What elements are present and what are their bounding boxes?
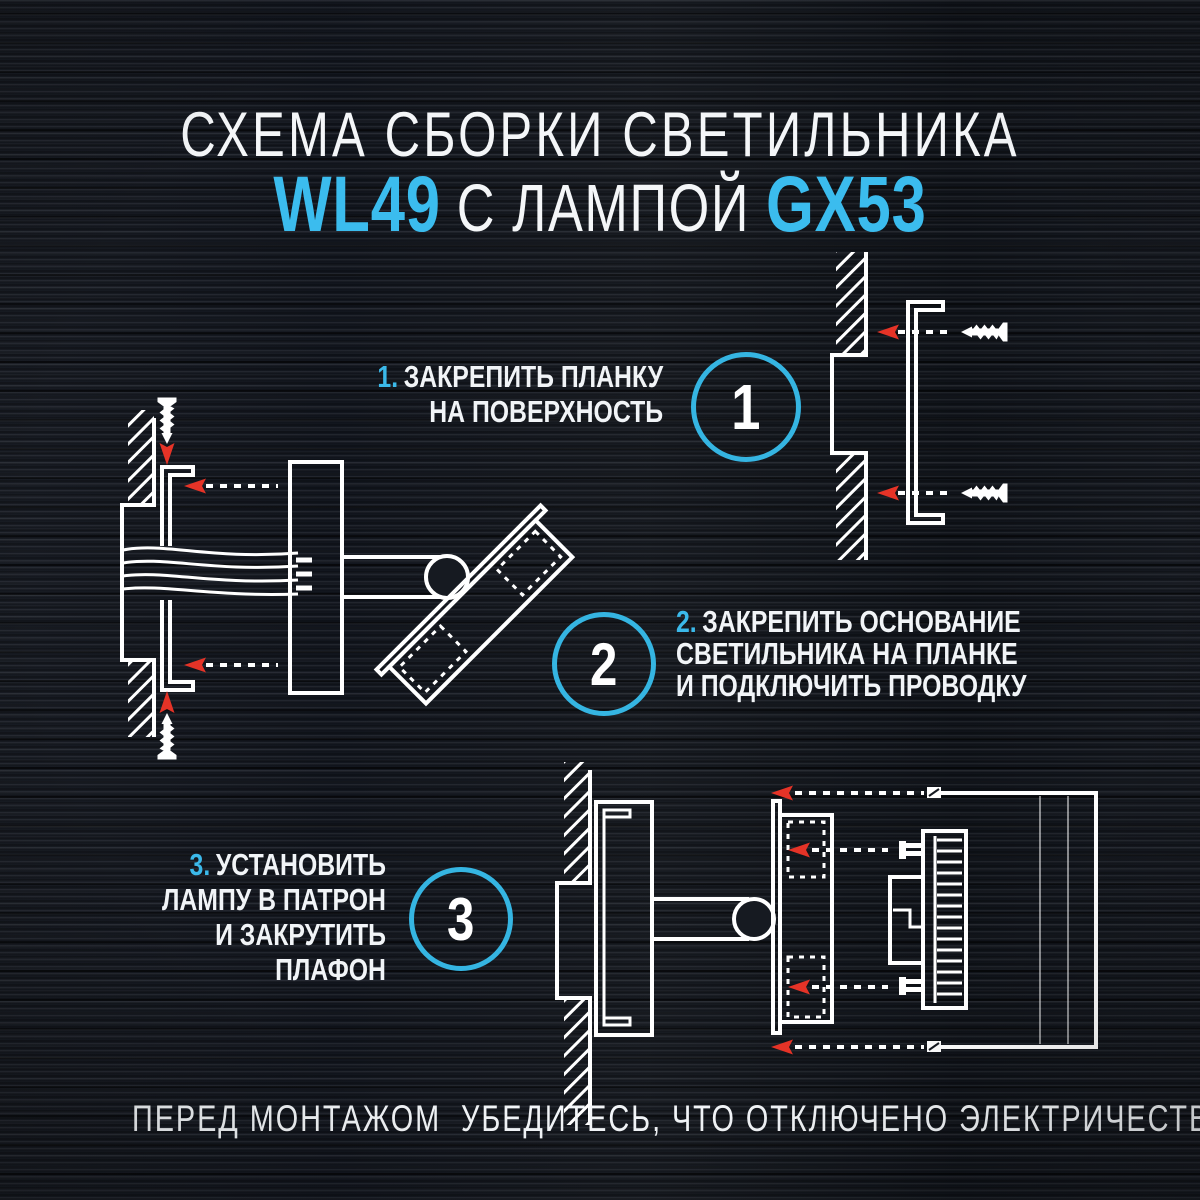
red-arrow-icon [184,479,206,494]
gx53-lamp-icon [890,831,966,1008]
pivot-joint [734,899,774,939]
step1-line1: 1.ЗАКРЕПИТЬ ПЛАНКУ [377,359,663,394]
red-arrow-icon [771,1040,793,1055]
step3-badge: 3 [409,867,513,971]
safety-warning: ПЕРЕД МОНТАЖОМ УБЕДИТЕСЬ, ЧТО ОТКЛЮЧЕНО … [132,1098,1068,1140]
step1-diagram [832,252,1008,560]
page-subtitle: WL49 С ЛАМПОЙ GX53 [132,162,1068,269]
red-arrow-icon [877,486,899,501]
step1-label: 1.ЗАКРЕПИТЬ ПЛАНКУ НА ПОВЕРХНОСТЬ [377,359,663,429]
step1-badge: 1 [691,352,801,462]
step3-number: 3. [190,847,211,882]
screw-icon [158,713,177,760]
mounting-plate-icon [162,467,193,546]
red-arrow-icon [771,786,793,801]
plafond [927,787,1096,1052]
screw-icon [961,484,1008,503]
step2-badge: 2 [552,612,656,716]
red-arrow-icon [788,980,810,995]
subtitle-middle: С ЛАМПОЙ [457,171,750,246]
step3-line1: 3.УСТАНОВИТЬ [162,847,386,882]
lamp-code: GX53 [766,159,927,248]
step3-line3: И ЗАКРУТИТЬ [162,917,386,952]
step3-line2: ЛАМПУ В ПАТРОН [162,882,386,917]
wall-hatch [836,453,866,560]
wall-hatch [564,762,590,883]
red-arrow-icon [160,691,175,713]
wires [123,548,312,595]
red-arrow-icon [160,443,175,465]
plafond-tab [927,1041,941,1052]
red-arrow-icon [184,658,206,673]
step2-label: 2.ЗАКРЕПИТЬ ОСНОВАНИЕ СВЕТИЛЬНИКА НА ПЛА… [676,606,1027,702]
step1-number: 1. [377,359,398,394]
screw-icon [158,398,177,445]
step1-line2: НА ПОВЕРХНОСТЬ [377,394,663,429]
step2-number: 2. [676,604,697,639]
step2-line3: И ПОДКЛЮЧИТЬ ПРОВОДКУ [676,670,1027,702]
lamp-socket [773,801,832,1033]
step3-label: 3.УСТАНОВИТЬ ЛАМПУ В ПАТРОН И ЗАКРУТИТЬ … [162,847,386,987]
lamp-socket-tilted [377,506,583,712]
step3-line4: ПЛАФОН [162,952,386,987]
fixture-base [290,462,342,693]
model-code: WL49 [273,159,440,248]
red-arrow-icon [877,325,899,340]
plafond-tab [927,787,941,798]
screw-icon [961,323,1008,342]
step2-line2: СВЕТИЛЬНИКА НА ПЛАНКЕ [676,638,1027,670]
red-arrow-icon [788,843,810,858]
mounting-plate-icon [908,302,943,523]
step2-line1: 2.ЗАКРЕПИТЬ ОСНОВАНИЕ [676,606,1027,638]
lamp-pin-icon [899,841,923,859]
lamp-pin-icon [899,977,923,995]
mounting-plate-icon [162,600,193,690]
step3-diagram [557,762,1096,1125]
mounting-plate-icon [604,810,630,1025]
wall-hatch [128,410,154,505]
step2-diagram [122,398,582,760]
wall-hatch [128,660,154,737]
